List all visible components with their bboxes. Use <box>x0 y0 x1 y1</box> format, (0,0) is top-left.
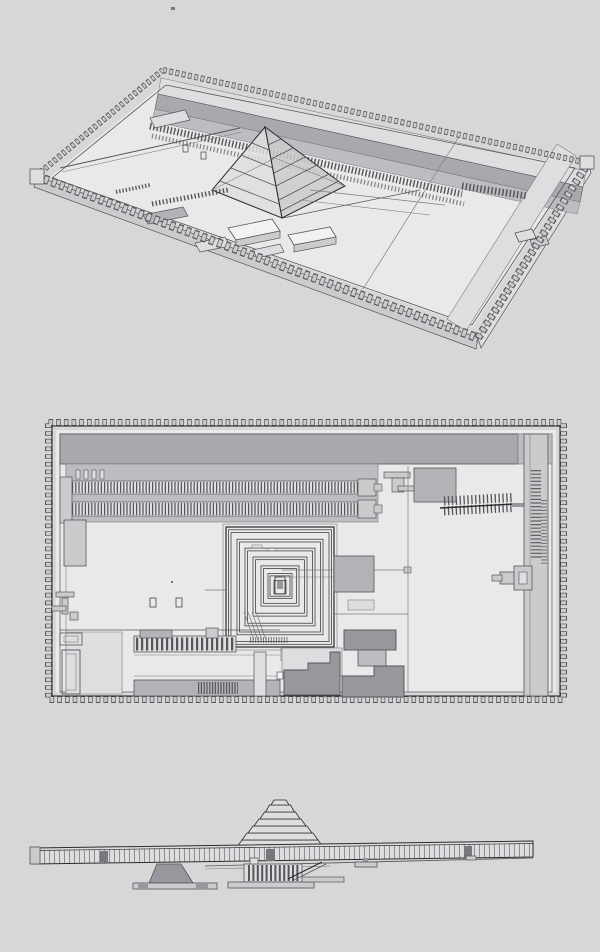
colonnade-west-cap <box>60 477 72 523</box>
foot <box>138 883 148 889</box>
platform <box>140 630 172 638</box>
entrance-door <box>519 572 527 584</box>
support-small <box>466 856 476 860</box>
hook <box>84 470 88 479</box>
north-terrace <box>60 434 518 464</box>
t-temple <box>56 592 74 597</box>
foot <box>196 883 208 889</box>
temple-annex <box>348 600 374 610</box>
colonnade-end <box>358 479 376 496</box>
enclosure-wall-elevation <box>30 841 533 864</box>
step-pyramid-elevation <box>237 800 323 847</box>
south-tomb-shaft <box>149 864 193 883</box>
ink-speck <box>171 7 175 10</box>
house-of-north-court <box>358 650 386 666</box>
colonnade-knob <box>374 484 382 491</box>
stair-strip <box>134 636 236 652</box>
corridor-strip <box>254 652 266 696</box>
support-base <box>355 862 377 867</box>
west-massif <box>64 520 86 566</box>
perspective-view <box>30 70 594 349</box>
model-render <box>0 0 600 952</box>
colonnade-end <box>358 500 376 518</box>
gallery-end <box>404 567 411 573</box>
corridor <box>524 434 548 696</box>
small-mark <box>277 672 283 679</box>
hook <box>92 470 96 479</box>
entrance-step <box>492 575 502 581</box>
plan-view <box>49 423 564 700</box>
hook <box>76 470 80 479</box>
shaft-base <box>228 882 314 888</box>
doorway <box>100 851 108 862</box>
house-of-north-upper <box>344 630 396 650</box>
notch <box>206 628 218 638</box>
shaft-top <box>250 858 258 864</box>
doorway <box>266 849 275 861</box>
elevation-view <box>30 800 533 889</box>
doorway <box>464 846 472 857</box>
hook <box>100 470 104 479</box>
east-corner-tower <box>580 156 594 169</box>
mortuary-temple <box>334 556 374 592</box>
wall-west-cap <box>30 847 40 864</box>
south-tomb-inner <box>66 654 76 690</box>
t-structure <box>384 472 410 478</box>
t-temple <box>52 606 66 611</box>
west-corner-tower <box>30 169 44 184</box>
north-pavilion-block <box>414 468 456 502</box>
ramp-platform <box>302 877 344 882</box>
colonnade-knob <box>374 505 382 513</box>
dot <box>171 581 173 583</box>
canvas <box>0 0 600 952</box>
t-temple <box>70 612 78 620</box>
